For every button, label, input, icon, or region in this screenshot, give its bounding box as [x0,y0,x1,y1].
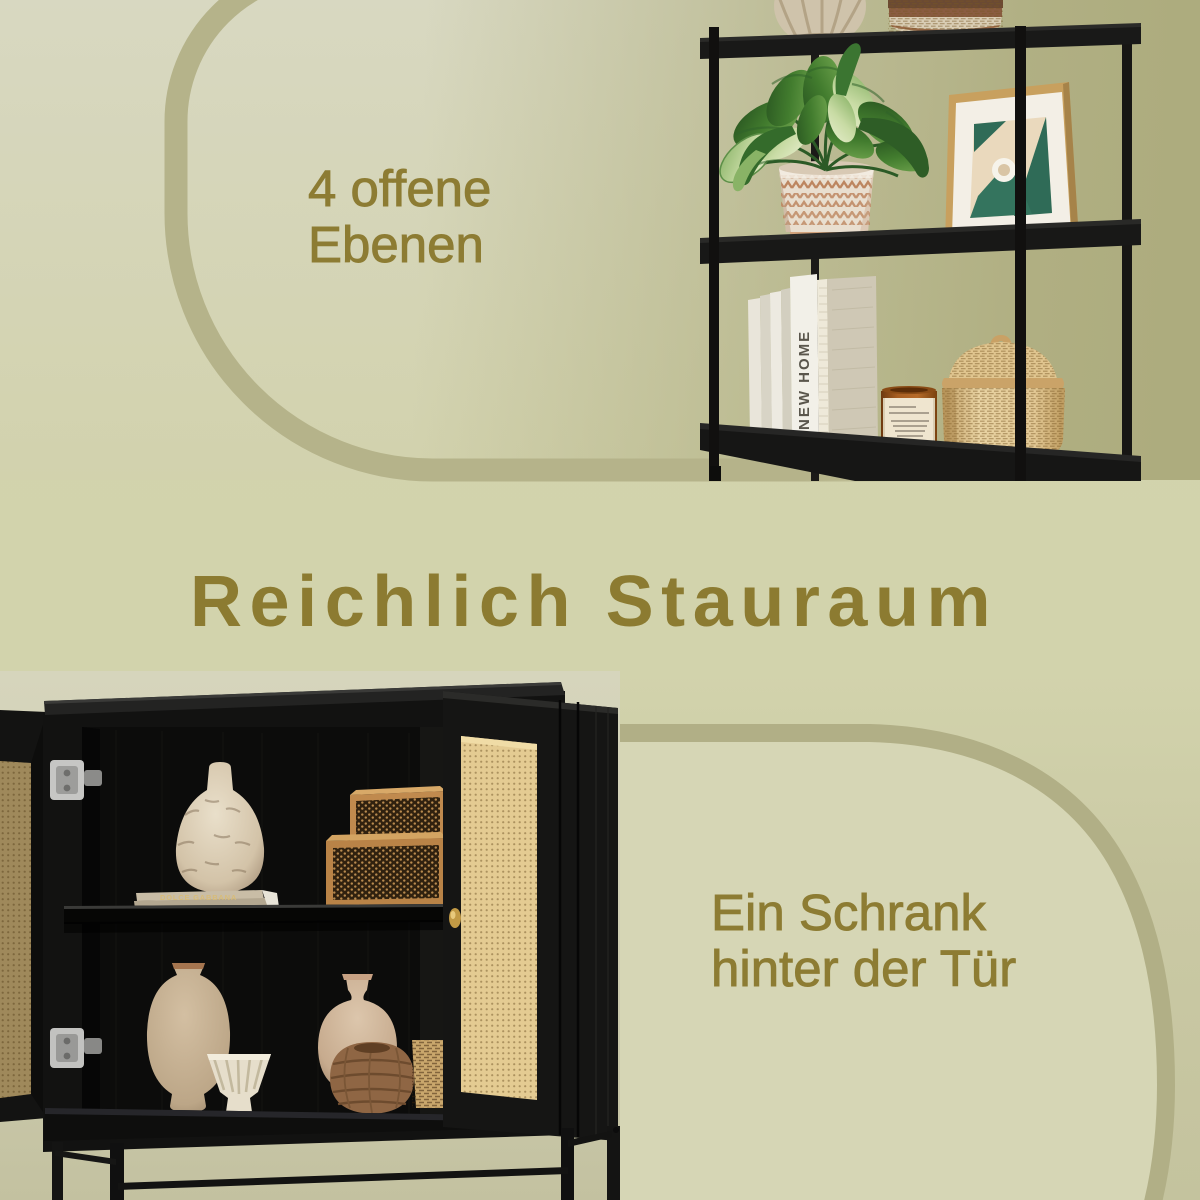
svg-text:NEW HOME: NEW HOME [796,330,813,430]
svg-text:DOLCE GABBANA: DOLCE GABBANA [160,893,237,902]
